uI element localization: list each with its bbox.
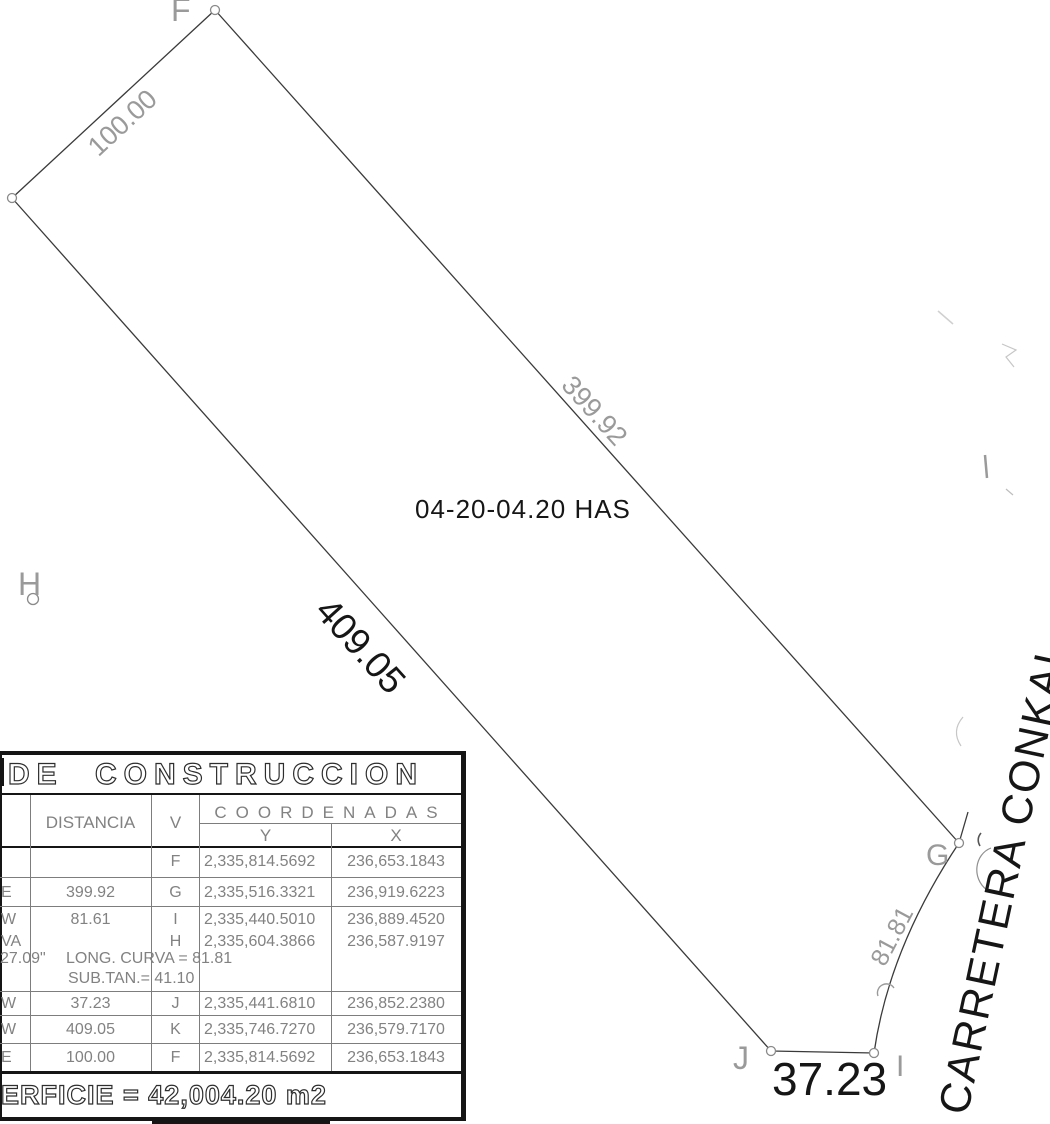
row-f-x: 236,653.1843	[331, 853, 461, 870]
header-underline	[0, 846, 461, 848]
title-underline	[0, 793, 466, 795]
row-k-rumbo: W	[1, 1021, 16, 1038]
row-k-dist: 409.05	[30, 1021, 151, 1038]
row-j-y: 2,335,441.6810	[204, 995, 315, 1012]
vertex-label-h: H	[18, 566, 41, 603]
row-j-v: J	[152, 995, 199, 1012]
vertex-label-i: I	[896, 1050, 904, 1084]
row-i-y: 2,335,440.5010	[204, 911, 315, 928]
curve-note-subtan: SUB.TAN.= 41.10	[68, 970, 194, 987]
scan-mark-4	[1006, 489, 1013, 495]
area-label: 04-20-04.20 HAS	[415, 494, 631, 525]
vertex-marker-k	[8, 194, 17, 203]
row-k-x: 236,579.7170	[331, 1021, 461, 1038]
header-v: V	[152, 814, 199, 831]
curve-note-long: LONG. CURVA = 81.81	[66, 950, 232, 967]
row-h-y: 2,335,604.3866	[204, 933, 315, 950]
row-line-1	[0, 877, 461, 878]
row-f-v: F	[152, 853, 199, 870]
table-title: DE CONSTRUCCION	[8, 758, 424, 792]
row-f2-v: F	[152, 1049, 199, 1066]
vertex-marker-g	[955, 839, 964, 848]
row-j-rumbo: W	[1, 995, 16, 1012]
row-f2-x: 236,653.1843	[331, 1049, 461, 1066]
header-coordenadas: COORDENADAS	[200, 804, 461, 821]
dimension-label-ij: 37.23	[772, 1052, 887, 1106]
row-i-dist: 81.61	[30, 911, 151, 928]
boundary-kf	[12, 10, 215, 198]
vertex-label-j: J	[733, 1040, 749, 1077]
row-g-v: G	[152, 884, 199, 901]
superficie-label: ERFICIE = 42,004.20 m2	[1, 1080, 327, 1111]
row-g-dist: 399.92	[30, 884, 151, 901]
faint-arc-artifact	[956, 717, 963, 746]
row-f2-y: 2,335,814.5692	[204, 1049, 315, 1066]
curve-length-symbol	[877, 984, 894, 996]
row-h-v: H	[152, 933, 199, 950]
row-i-rumbo: W	[1, 911, 16, 928]
scan-mark-2	[1002, 344, 1016, 367]
vertex-label-g: G	[926, 839, 949, 873]
row-g-rumbo: E	[1, 884, 12, 901]
row-h-x: 236,587.9197	[331, 933, 461, 950]
vertex-label-f: F	[171, 0, 191, 29]
row-line-3	[0, 991, 461, 992]
row-h-rumbo: VA	[1, 933, 21, 950]
row-g-x: 236,919.6223	[331, 884, 461, 901]
header-x: X	[331, 827, 461, 844]
row-f-y: 2,335,814.5692	[204, 853, 315, 870]
scan-mark-3	[985, 455, 987, 478]
row-k-v: K	[152, 1021, 199, 1038]
row-f2-rumbo: E	[1, 1049, 12, 1066]
row-i-v: I	[152, 911, 199, 928]
table-body-bottom	[0, 1071, 461, 1074]
row-j-dist: 37.23	[30, 995, 151, 1012]
row-j-x: 236,852.2380	[331, 995, 461, 1012]
header-y: Y	[200, 827, 331, 844]
table-border-top	[0, 751, 466, 755]
curve-angle-fragment: 27.09"	[0, 950, 46, 967]
row-k-y: 2,335,746.7270	[204, 1021, 315, 1038]
title-letter-sliver	[0, 758, 4, 786]
row-g-y: 2,335,516.3321	[204, 884, 315, 901]
vertex-marker-f	[211, 6, 220, 15]
survey-plan-sheet: F 100.00 399.92 04-20-04.20 HAS H 409.05…	[0, 0, 1050, 1124]
row-f2-dist: 100.00	[30, 1049, 151, 1066]
row-line-2	[0, 906, 461, 907]
row-i-x: 236,889.4520	[331, 911, 461, 928]
tick-mark-near-g	[978, 833, 981, 846]
header-distancia: DISTANCIA	[30, 814, 151, 831]
row-line-5	[0, 1043, 461, 1044]
scan-mark-1	[938, 311, 953, 324]
row-line-4	[0, 1015, 461, 1016]
table-border-right	[461, 751, 466, 1121]
